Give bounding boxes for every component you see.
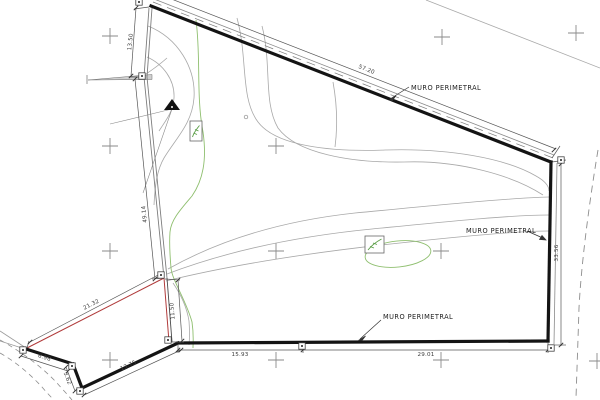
dim-bottom-right: 29.01 [417,352,434,358]
vegetation-contour-lines [170,20,433,348]
dim-right-edge: 33.56 [554,244,560,261]
tree-symbol-box-2 [365,236,384,253]
terrain-contour-lines [146,18,549,345]
site-plan-drawing: 57.20 33.56 13.50 49.14 11.50 21.32 15.9… [0,0,600,400]
dim-bottom-left: 15.93 [231,352,248,358]
site-plan-sheet: 57.20 33.56 13.50 49.14 11.50 21.32 15.9… [0,0,600,400]
muro-perimetral-label-right: MURO PERIMETRAL [466,227,536,235]
muro-perimetral-label-bottom: MURO PERIMETRAL [383,313,453,321]
survey-station-triangle-icon [164,99,180,110]
crosshair-grid-markers [102,25,600,369]
dimension-lines [21,0,566,395]
red-boundary-lines [27,278,169,348]
left-wall-faces [144,8,172,342]
corner-markers [20,0,564,394]
dimension-texts: 57.20 33.56 13.50 49.14 11.50 21.32 15.9… [37,33,560,386]
dim-left-upper: 13.50 [127,33,135,51]
spot-point-circle [244,115,248,119]
dim-sw-wall-c: 13.75 [120,360,138,373]
tree-symbol-box-1 [190,121,202,141]
muro-perimetral-label-top: MURO PERIMETRAL [411,84,481,92]
perimeter-wall [26,6,551,388]
dim-sw-wall-b: 3.62 [62,371,72,386]
wall-labels: MURO PERIMETRAL MURO PERIMETRAL MURO PER… [383,84,536,321]
perimeter-wall-faces [153,0,557,344]
dim-left-lower: 11.50 [169,302,176,320]
dim-top-edge: 57.20 [357,64,375,76]
